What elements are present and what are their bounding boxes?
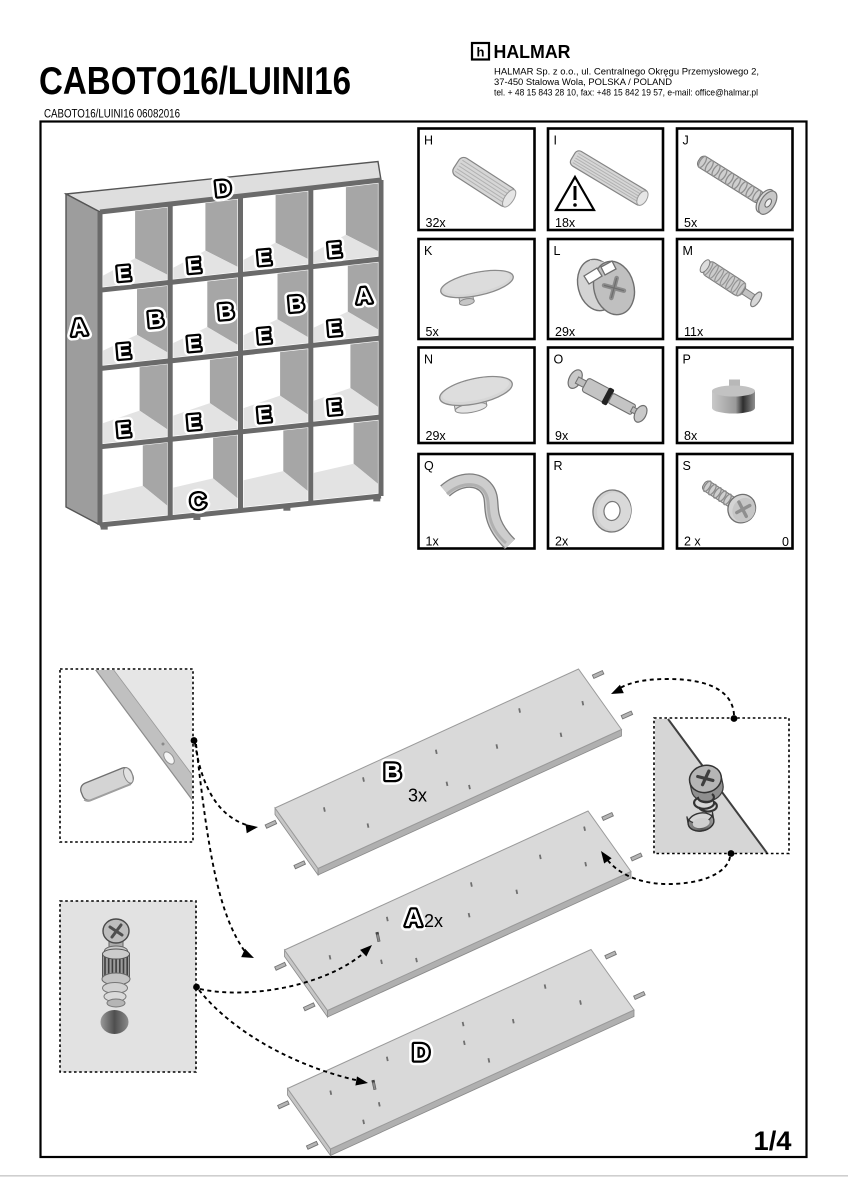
svg-text:N: N [424, 353, 433, 367]
svg-text:A: A [355, 282, 373, 308]
svg-text:R: R [554, 459, 563, 473]
svg-text:E: E [186, 254, 202, 278]
svg-text:E: E [326, 317, 342, 341]
svg-text:B: B [384, 759, 401, 786]
svg-text:E: E [256, 403, 272, 427]
svg-text:h: h [477, 45, 485, 60]
svg-text:5x: 5x [684, 216, 698, 230]
svg-text:E: E [256, 246, 272, 270]
svg-text:E: E [116, 418, 132, 442]
svg-text:8x: 8x [684, 429, 698, 443]
svg-text:3x: 3x [408, 786, 427, 806]
svg-text:A: A [405, 905, 422, 932]
svg-text:D: D [214, 175, 232, 202]
svg-text:K: K [424, 244, 433, 258]
svg-text:CABOTO16/LUINI16 06082016: CABOTO16/LUINI16 06082016 [44, 109, 180, 121]
svg-text:CABOTO16/LUINI16: CABOTO16/LUINI16 [39, 60, 351, 103]
svg-text:M: M [683, 244, 693, 258]
svg-text:9x: 9x [555, 429, 569, 443]
svg-text:S: S [683, 459, 691, 473]
svg-text:P: P [683, 353, 691, 367]
svg-text:29x: 29x [555, 325, 576, 339]
svg-text:E: E [186, 411, 202, 435]
svg-text:1/4: 1/4 [754, 1126, 792, 1156]
svg-text:0: 0 [782, 535, 789, 549]
svg-text:E: E [116, 262, 132, 286]
svg-text:2x: 2x [555, 535, 569, 549]
svg-text:A: A [70, 314, 89, 341]
svg-text:HALMAR Sp. z o.o., ul. Central: HALMAR Sp. z o.o., ul. Centralnego Okręg… [494, 67, 759, 77]
svg-text:E: E [326, 396, 342, 420]
svg-text:C: C [189, 488, 207, 514]
svg-text:29x: 29x [426, 429, 447, 443]
svg-text:2 x: 2 x [684, 535, 701, 549]
svg-text:18x: 18x [555, 216, 576, 230]
svg-text:Q: Q [424, 459, 434, 473]
svg-text:D: D [412, 1040, 429, 1067]
svg-text:B: B [287, 291, 305, 317]
svg-text:J: J [683, 134, 689, 148]
svg-text:I: I [554, 134, 557, 148]
svg-text:11x: 11x [684, 325, 704, 339]
svg-text:37-450 Stalowa Wola, POLSKA /: 37-450 Stalowa Wola, POLSKA / POLAND [494, 77, 672, 87]
svg-text:HALMAR: HALMAR [494, 42, 571, 62]
svg-text:O: O [554, 353, 564, 367]
svg-text:E: E [116, 340, 132, 364]
svg-text:2x: 2x [424, 911, 443, 931]
svg-text:B: B [147, 306, 165, 332]
svg-text:tel. + 48 15 843 28 10, fax: +: tel. + 48 15 843 28 10, fax: +48 15 842 … [494, 87, 758, 97]
svg-text:B: B [217, 298, 235, 324]
svg-text:L: L [554, 244, 561, 258]
svg-text:H: H [424, 134, 433, 148]
svg-text:32x: 32x [426, 216, 447, 230]
svg-text:E: E [186, 332, 202, 356]
svg-text:E: E [256, 325, 272, 349]
svg-text:1x: 1x [426, 535, 440, 549]
svg-text:5x: 5x [426, 325, 440, 339]
svg-text:E: E [326, 238, 342, 262]
